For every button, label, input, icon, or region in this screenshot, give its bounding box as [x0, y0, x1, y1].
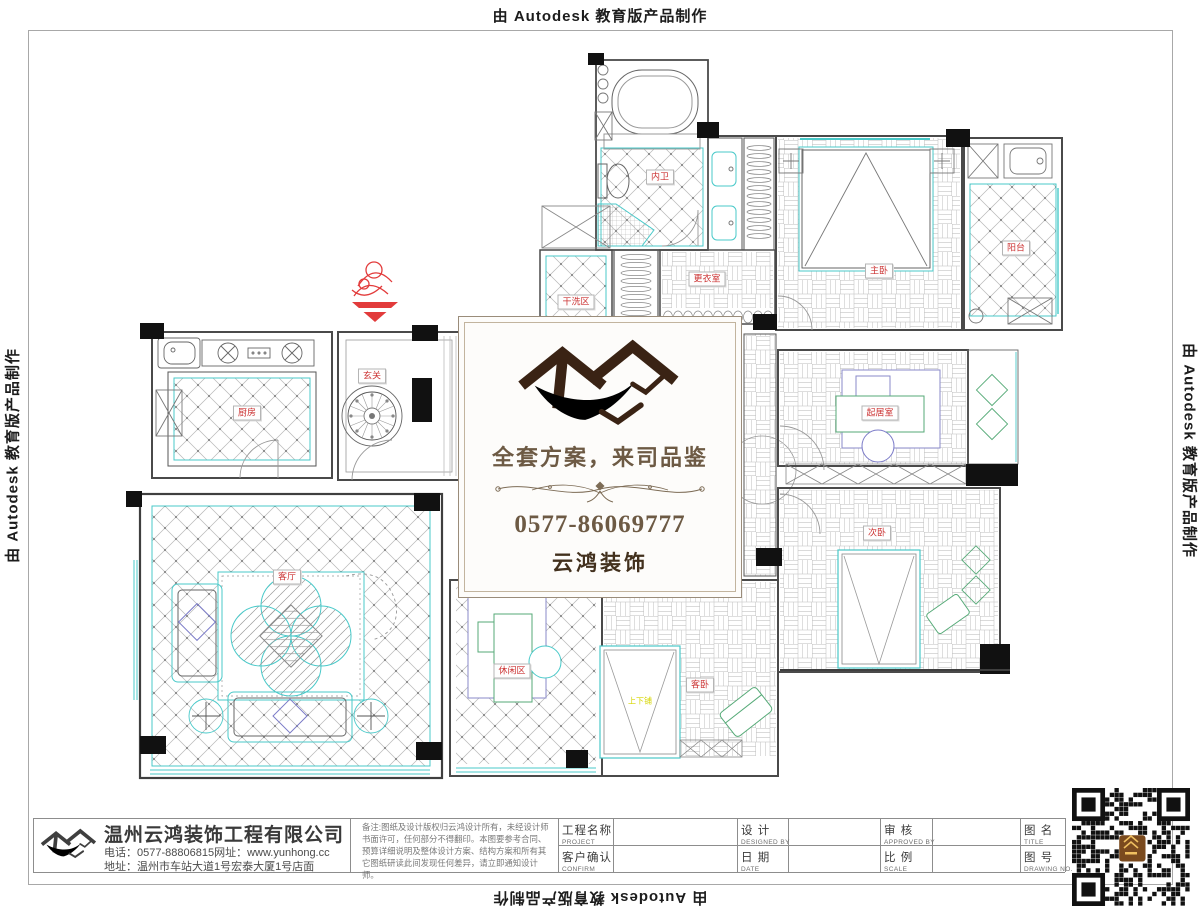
copyright-notes: 备注:图纸及设计版权归云鸿设计所有，未经设计师书面许可，任何部分不得翻印。本图要…: [362, 822, 552, 882]
company-name: 温州云鸿装饰工程有限公司: [104, 820, 344, 847]
watermark-card: 全套方案，来司品鉴 0577-86069777 云鸿装饰: [458, 316, 742, 598]
company-address: 地址：温州市车站大道1号宏泰大厦1号店面: [104, 858, 314, 874]
room-label-bathroom: 内卫: [646, 170, 674, 185]
field-designed-by: 设 计 DESIGNED BY: [741, 822, 790, 846]
watermark-slogan: 全套方案，来司品鉴: [465, 440, 735, 472]
watermark-inner-border: 全套方案，来司品鉴 0577-86069777 云鸿装饰: [464, 322, 736, 592]
qr-code: [1072, 786, 1190, 908]
watermark-brand: 云鸿装饰: [465, 547, 735, 577]
room-label-living: 客厅: [273, 570, 301, 585]
house-logo-icon: [510, 335, 690, 433]
room-label-guest: 客卧: [686, 678, 714, 693]
company-logo-icon: [38, 823, 100, 865]
field-title: 图 名 TITLE: [1024, 822, 1053, 846]
watermark-phone: 0577-86069777: [465, 511, 735, 539]
room-label-balcony: 阳台: [1002, 241, 1030, 256]
room-label-bedroom2: 次卧: [863, 526, 891, 541]
room-label-entry: 玄关: [358, 369, 386, 384]
autodesk-banner-top: 由 Autodesk 教育版产品制作: [0, 5, 1200, 26]
room-label-dressing: 更衣室: [688, 272, 725, 287]
flourish-icon: [490, 478, 710, 504]
room-label-master: 主卧: [865, 264, 893, 279]
field-scale: 比 例 SCALE: [884, 849, 913, 873]
field-date: 日 期 DATE: [741, 849, 770, 873]
room-label-dryclean: 干洗区: [557, 295, 594, 310]
qr-center-logo: [1119, 835, 1145, 861]
room-label-kitchen: 厨房: [233, 406, 261, 421]
autodesk-banner-right: 由 Autodesk 教育版产品制作: [1180, 301, 1200, 601]
field-project: 工程名称 PROJECT: [562, 822, 612, 846]
room-label-leisure: 休闲区: [493, 664, 530, 679]
autodesk-banner-bottom: 由 Autodesk 教育版产品制作: [450, 888, 750, 909]
field-confirm: 客户确认 CONFIRM: [562, 849, 612, 873]
room-label-sitting: 起居室: [861, 406, 898, 421]
bunk-annotation: 上下铺: [628, 696, 652, 707]
autodesk-banner-left: 由 Autodesk 教育版产品制作: [2, 306, 23, 606]
field-approved-by: 审 核 APPROVED BY: [884, 822, 935, 846]
field-drawing-no: 图 号 DRAWING NO.: [1024, 849, 1073, 873]
